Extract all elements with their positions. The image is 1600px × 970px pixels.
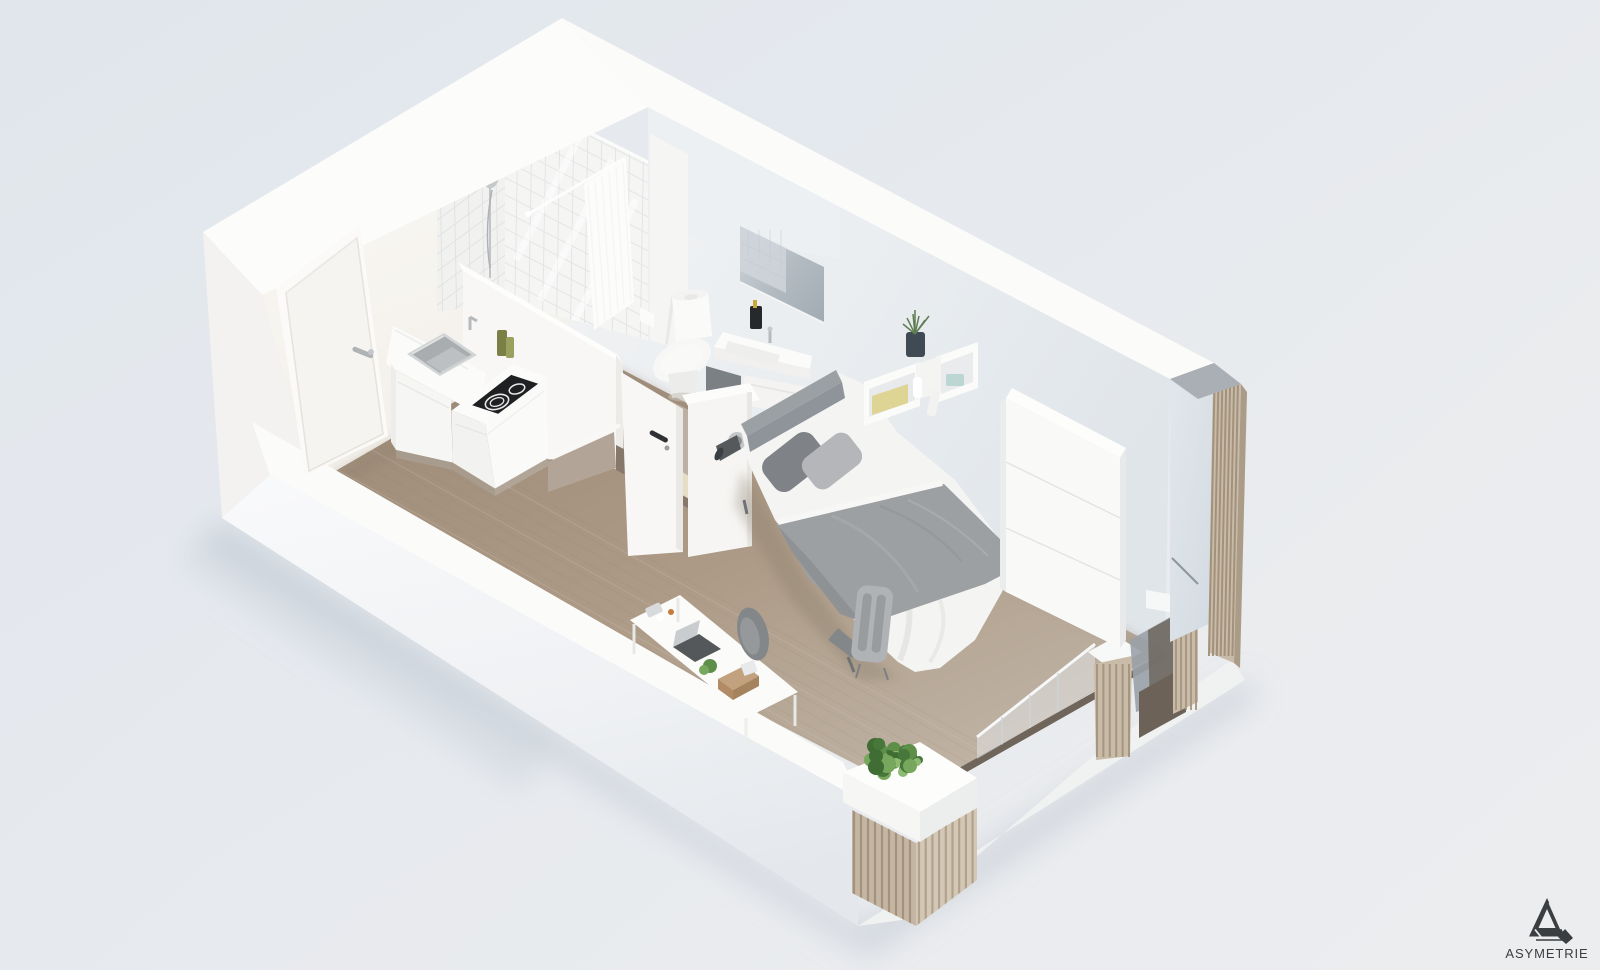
svg-text:ASYMETRIE: ASYMETRIE	[1505, 946, 1588, 961]
